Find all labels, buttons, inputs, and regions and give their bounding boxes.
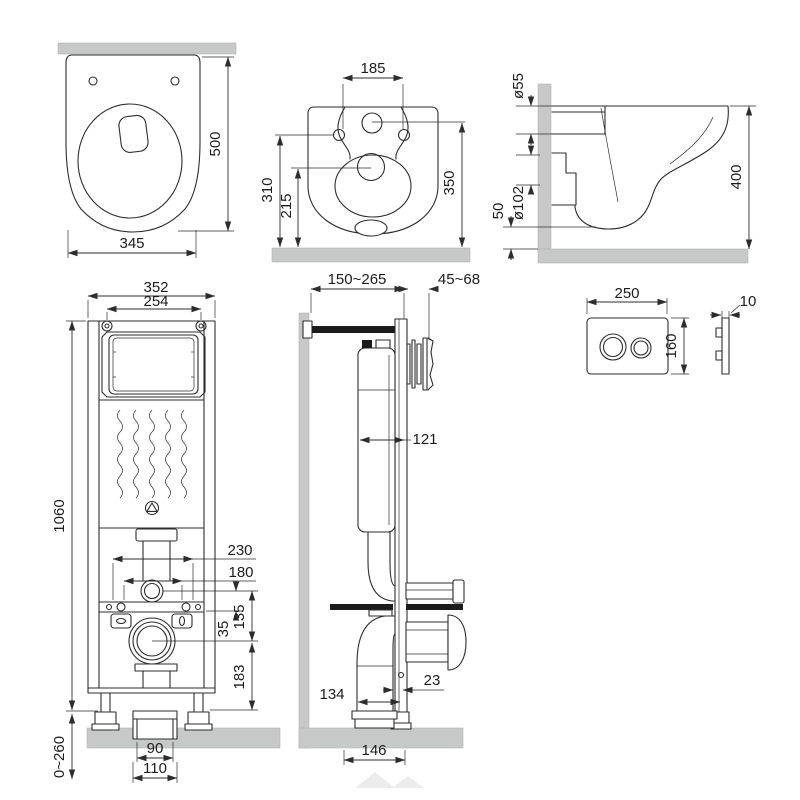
view-bowl-top: 500 345 bbox=[58, 43, 236, 258]
fill-valve-cap bbox=[362, 340, 372, 348]
plate-clip bbox=[716, 351, 722, 360]
tank-fitting bbox=[376, 340, 390, 348]
dim-bolt-spacing: 185 bbox=[360, 60, 385, 77]
drain-pipe-stub bbox=[133, 711, 177, 739]
flush-bend bbox=[368, 562, 395, 601]
dim-drain-offset: 134 bbox=[319, 686, 344, 703]
bowl-back-slope bbox=[601, 108, 618, 202]
drain-outlet-pipe bbox=[406, 622, 448, 662]
view-bowl-rear: 185 310 215 350 bbox=[259, 60, 470, 262]
dim-inlet-height: 310 bbox=[259, 177, 276, 202]
wall-stud-assembly bbox=[407, 338, 433, 390]
dim-inlet-drop: 135 bbox=[231, 604, 248, 629]
outlet-step bbox=[552, 153, 576, 205]
dim-bowl-width: 345 bbox=[119, 235, 144, 252]
dimension-drawing: 500 345 185 310 215 350 bbox=[0, 0, 800, 800]
dim-bowl-depth: 500 bbox=[207, 131, 224, 156]
dim-overall-height: 350 bbox=[441, 170, 458, 195]
wall-section bbox=[58, 43, 236, 54]
watermark bbox=[355, 772, 424, 788]
view-frame-side: 150~265 45~68 121 23 134 146 bbox=[299, 271, 480, 765]
wall-section bbox=[299, 313, 309, 748]
drain-bend bbox=[357, 616, 395, 664]
dim-leg-range: 0~260 bbox=[51, 736, 68, 778]
mounting-bar bbox=[330, 604, 393, 610]
bowl-side-profile bbox=[575, 106, 728, 229]
dim-bar-offset: 35 bbox=[215, 621, 232, 638]
dim-plate-height: 160 bbox=[663, 333, 680, 358]
water-inlet-pipe bbox=[406, 583, 453, 599]
mounting-bar bbox=[406, 604, 463, 610]
dim-outlet-diameter: ø102 bbox=[510, 186, 527, 220]
inlet-flange bbox=[453, 580, 464, 603]
support-rod bbox=[312, 326, 395, 333]
outlet-sleeve bbox=[355, 220, 387, 236]
bowl-inner-curve bbox=[670, 117, 713, 164]
wall-section bbox=[538, 84, 551, 250]
drain-socket bbox=[448, 615, 466, 670]
dim-bottom-offset: 50 bbox=[490, 203, 507, 220]
dim-tank-depth: 121 bbox=[412, 431, 437, 448]
dim-drain-outer: 110 bbox=[143, 760, 167, 777]
adjustable-foot bbox=[188, 712, 209, 725]
technical-drawing-canvas: 500 345 185 310 215 350 bbox=[0, 0, 800, 800]
drain-collar bbox=[352, 711, 397, 719]
adjustable-foot bbox=[95, 712, 116, 725]
view-flush-plate: 250 160 10 bbox=[587, 285, 756, 374]
dim-plate-width: 250 bbox=[614, 285, 639, 302]
floor-section bbox=[538, 249, 748, 263]
dim-outer-spacing: 230 bbox=[227, 542, 252, 559]
dim-drain-depth: 146 bbox=[361, 742, 386, 759]
dim-frame-height: 1060 bbox=[51, 499, 68, 532]
bowl-rear-outline bbox=[308, 107, 438, 234]
dim-outlet-height: 215 bbox=[278, 193, 295, 218]
rod-wall-anchor bbox=[303, 321, 312, 338]
floor-slab bbox=[87, 728, 280, 748]
dim-outlet-to-base: 183 bbox=[231, 664, 248, 689]
outlet-connector bbox=[369, 610, 392, 616]
dim-bolt-spacing: 254 bbox=[143, 293, 168, 310]
dim-front-gap: 23 bbox=[424, 672, 441, 689]
frame-rail bbox=[395, 319, 407, 712]
dim-plate-thickness: 10 bbox=[740, 293, 757, 310]
dim-depth-range: 150~265 bbox=[328, 271, 387, 288]
dim-inner-spacing: 180 bbox=[228, 564, 253, 581]
dim-overall-height: 400 bbox=[728, 164, 745, 189]
floor-section bbox=[272, 248, 470, 262]
plate-clip bbox=[716, 328, 722, 337]
dim-drain-inner: 90 bbox=[147, 740, 164, 757]
flush-plate-side bbox=[722, 318, 729, 374]
view-frame-front: 352 254 1060 230 180 35 135 bbox=[51, 279, 280, 783]
dim-inlet-diameter: ø55 bbox=[510, 73, 527, 99]
view-bowl-side: ø55 ø102 50 400 bbox=[490, 73, 756, 263]
flush-plate-front bbox=[587, 318, 668, 374]
dim-stud-range: 45~68 bbox=[438, 271, 480, 288]
